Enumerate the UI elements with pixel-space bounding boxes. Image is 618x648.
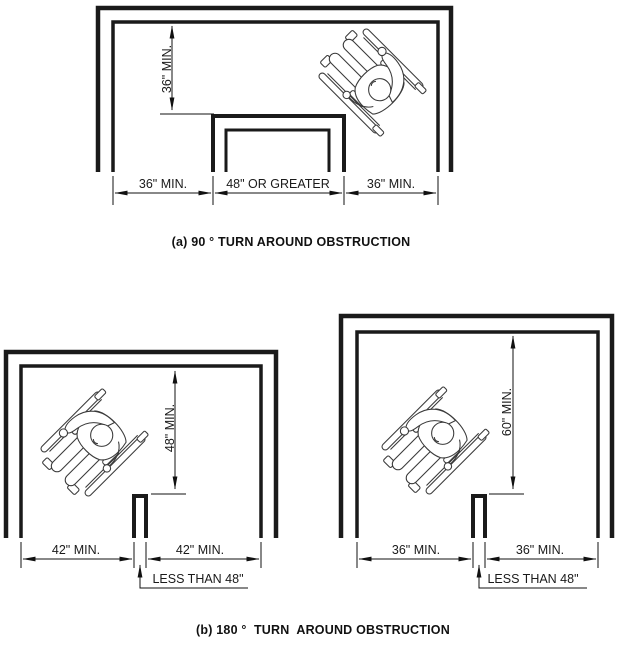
- figure-canvas: 36" MIN. 36" MIN. 48" OR GREATER 36" MIN…: [0, 0, 618, 648]
- dim-label-60-vertical: 60" MIN.: [500, 388, 514, 436]
- dim-label-36-vertical: 36" MIN.: [160, 45, 174, 93]
- dim-label-36-right: 36" MIN.: [516, 543, 564, 557]
- dim-label-48-vertical: 48" MIN.: [163, 404, 177, 452]
- wheelchair-user-figure: [312, 22, 428, 138]
- inner-wall: [21, 366, 261, 538]
- extension-lines: [113, 114, 438, 205]
- caption-a: (a) 90 ° TURN AROUND OBSTRUCTION: [91, 235, 491, 249]
- dim-label-36-left: 36" MIN.: [139, 177, 187, 191]
- diagram-b-right-180-turn: 60" MIN. 36" MIN. 36" MIN. LESS THAN 48": [341, 316, 612, 588]
- obstruction-wall: [473, 496, 485, 538]
- diagram-a-90-turn: 36" MIN. 36" MIN. 48" OR GREATER 36" MIN…: [98, 8, 451, 205]
- obstruction-inner: [226, 130, 329, 172]
- dim-label-36-left: 36" MIN.: [392, 543, 440, 557]
- diagram-b-left-180-turn: 48" MIN. 42" MIN. 42" MIN. LESS THAN 48": [6, 352, 276, 588]
- dim-label-42-right: 42" MIN.: [176, 543, 224, 557]
- dim-label-less-than-48: LESS THAN 48": [487, 572, 578, 586]
- dim-label-36-right: 36" MIN.: [367, 177, 415, 191]
- caption-b: (b) 180 ° TURN AROUND OBSTRUCTION: [123, 623, 523, 637]
- dim-label-less-than-48: LESS THAN 48": [152, 572, 243, 586]
- wheelchair-user-figure: [375, 385, 491, 501]
- dim-label-42-left: 42" MIN.: [52, 543, 100, 557]
- outer-wall: [341, 316, 612, 538]
- turn-around-obstruction-diagram: 36" MIN. 36" MIN. 48" OR GREATER 36" MIN…: [0, 0, 618, 648]
- wheelchair-user-figure: [34, 387, 150, 503]
- obstruction-outer: [213, 116, 344, 172]
- obstruction-wall: [134, 496, 146, 538]
- dim-label-48-or-greater: 48" OR GREATER: [226, 177, 330, 191]
